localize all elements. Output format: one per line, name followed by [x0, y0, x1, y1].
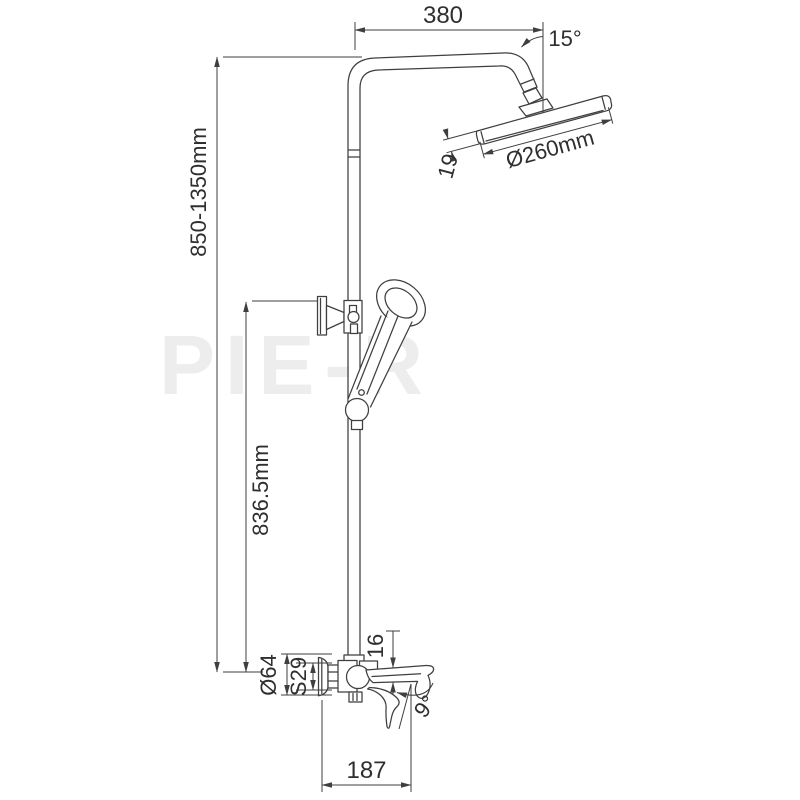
bracket-flange — [318, 297, 327, 336]
arm-joint-line — [521, 79, 534, 84]
ext-line — [443, 131, 477, 140]
dim-arrow-19-upper — [445, 129, 448, 139]
dim-label-15deg: 15° — [548, 26, 581, 51]
dim-label-187: 187 — [346, 757, 386, 784]
holder-knob — [348, 312, 359, 323]
mixer-valve — [319, 655, 434, 728]
mixer-handle — [368, 688, 400, 729]
dim-label-380: 380 — [423, 2, 463, 29]
cartridge-ball — [347, 666, 370, 689]
diverter-knob — [349, 692, 362, 702]
dim-label-836-5: 836.5mm — [248, 444, 273, 536]
dim-label-s29: S29 — [286, 657, 311, 696]
ext-line — [608, 107, 612, 123]
slider-nub — [352, 421, 363, 430]
angle-arc-15 — [522, 37, 544, 48]
dim-label-850-1350: 850-1350mm — [186, 127, 211, 257]
mixer-nut — [328, 665, 339, 688]
technical-drawing-svg: PIE-R — [0, 0, 800, 800]
dim-label-16: 16 — [363, 634, 388, 658]
drawing-canvas: PIE-R — [0, 0, 800, 800]
dim-label-19: 19 — [433, 151, 463, 181]
slider-knob — [346, 399, 369, 422]
holder-tab — [351, 324, 358, 334]
dim-label-64: Ø64 — [256, 654, 281, 696]
